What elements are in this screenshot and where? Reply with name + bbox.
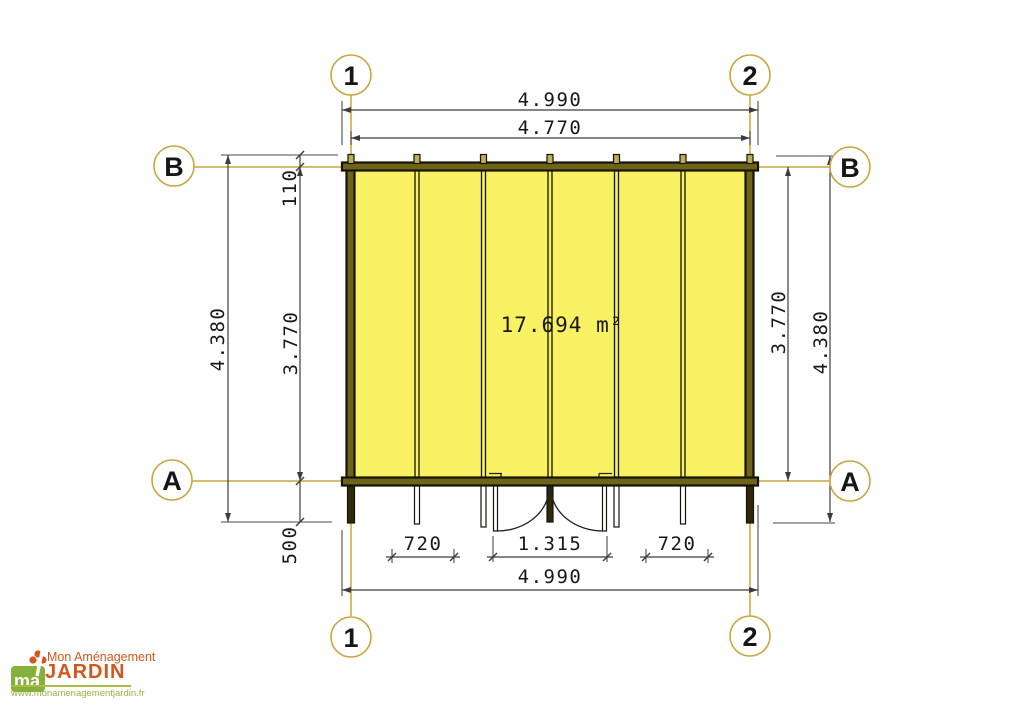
brand-main-text: JARDIN — [45, 661, 125, 684]
logo-divider — [11, 685, 131, 687]
corner-post-left — [348, 486, 355, 523]
dim-bay-right: 720 — [658, 533, 697, 555]
dim-right-inner: 3.770 — [768, 290, 790, 355]
bottom-posts — [348, 486, 754, 527]
dim-bottom-overall: 4.990 — [518, 566, 583, 588]
bottom-beam — [342, 478, 758, 486]
dim-top-overall: 4.990 — [518, 89, 583, 111]
dim-right-overall: 4.380 — [810, 310, 832, 375]
brand-logo: ma Mon Aménagement JARDIN www.monamenage… — [8, 644, 158, 702]
dim-front-offset: 110 — [279, 169, 301, 208]
door-center-post — [547, 486, 553, 522]
bubble-b-left-label: B — [164, 152, 184, 182]
bubble-2-bottom-label: 2 — [742, 622, 757, 652]
right-beam — [746, 163, 754, 486]
left-beam — [347, 163, 355, 486]
door-leaf-right — [603, 486, 607, 531]
brand-url: www.monamenagementjardin.fr — [11, 688, 145, 699]
dim-door-opening: 1.315 — [518, 533, 583, 555]
bubble-a-left-label: A — [162, 466, 182, 496]
bubble-1-top-label: 1 — [343, 61, 358, 91]
dim-bay-left: 720 — [404, 533, 443, 555]
floorplan-drawing: 4.990 4.770 4.380 3.770 110 500 3.770 4.… — [0, 0, 1024, 705]
area-label: 17.694 m² — [501, 313, 624, 337]
dim-top-inner: 4.770 — [518, 117, 583, 139]
bubble-a-right-label: A — [840, 467, 860, 497]
floorplan-canvas: 4.990 4.770 4.380 3.770 110 500 3.770 4.… — [0, 0, 1024, 705]
door-swing-arc-left — [497, 488, 549, 531]
bubble-2-top-label: 2 — [742, 61, 757, 91]
door-leaf-left — [494, 486, 498, 531]
door-swing-arc-right — [551, 488, 603, 531]
bubble-1-bottom-label: 1 — [343, 623, 358, 653]
corner-post-right — [747, 486, 754, 523]
dim-left-inner: 3.770 — [280, 311, 302, 376]
dim-back-offset: 500 — [279, 526, 301, 565]
dim-left-overall: 4.380 — [207, 307, 229, 372]
bubble-b-right-label: B — [840, 153, 860, 183]
